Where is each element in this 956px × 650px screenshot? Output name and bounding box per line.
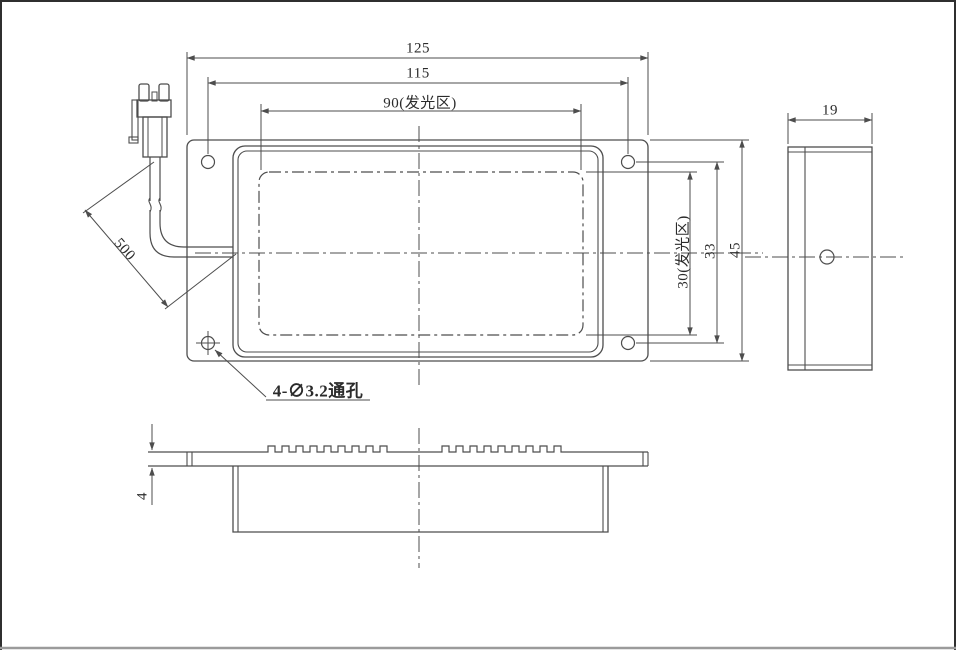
- body-outline-inner: [238, 151, 598, 352]
- dim-depth-label: 19: [822, 103, 838, 120]
- cable-inner-line: [160, 157, 233, 247]
- dim-hole-span-width-label: 115: [406, 66, 429, 83]
- connector-cable: [129, 84, 233, 257]
- dim-overall-height-label: 45: [728, 242, 745, 258]
- section-view: [148, 424, 648, 568]
- flange-outline: [187, 140, 648, 361]
- body-outline-outer: [233, 146, 603, 357]
- dim-hole-span-height-label: 33: [703, 243, 720, 259]
- mounting-hole-top-left: [202, 156, 215, 169]
- page-border: [0, 0, 956, 650]
- section-body: [233, 466, 608, 532]
- side-view: [745, 113, 905, 370]
- drawing-linework: [0, 0, 956, 650]
- connector-prong-right: [159, 84, 169, 101]
- dim-plate-thickness-label: 4: [135, 492, 152, 500]
- hole-callout-label: 4-∅3.2通孔: [273, 377, 363, 402]
- connector-prong-left: [139, 84, 149, 101]
- connector-body: [143, 117, 167, 157]
- dim-luminous-width-label: 90(发光区): [383, 92, 457, 113]
- dim-luminous-height-label: 30(发光区): [672, 215, 693, 289]
- mounting-hole-bottom-right: [622, 337, 635, 350]
- drawing-canvas: 125 115 90(发光区) 30(发光区) 33 45 500 4-∅3.2…: [0, 0, 956, 650]
- mounting-hole-top-right: [622, 156, 635, 169]
- dim-overall-width-label: 125: [406, 41, 430, 58]
- connector-housing: [137, 100, 171, 117]
- side-view-outline: [788, 147, 872, 370]
- serrated-top-edge: [148, 446, 648, 452]
